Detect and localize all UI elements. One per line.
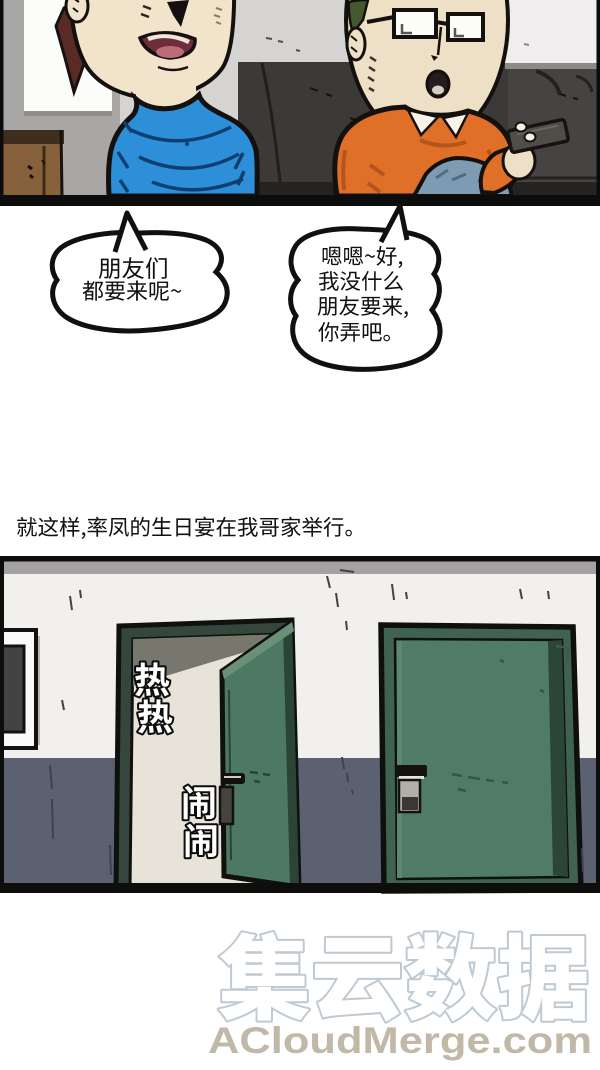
svg-text:ACloudMerge.com: ACloudMerge.com (208, 1020, 592, 1061)
